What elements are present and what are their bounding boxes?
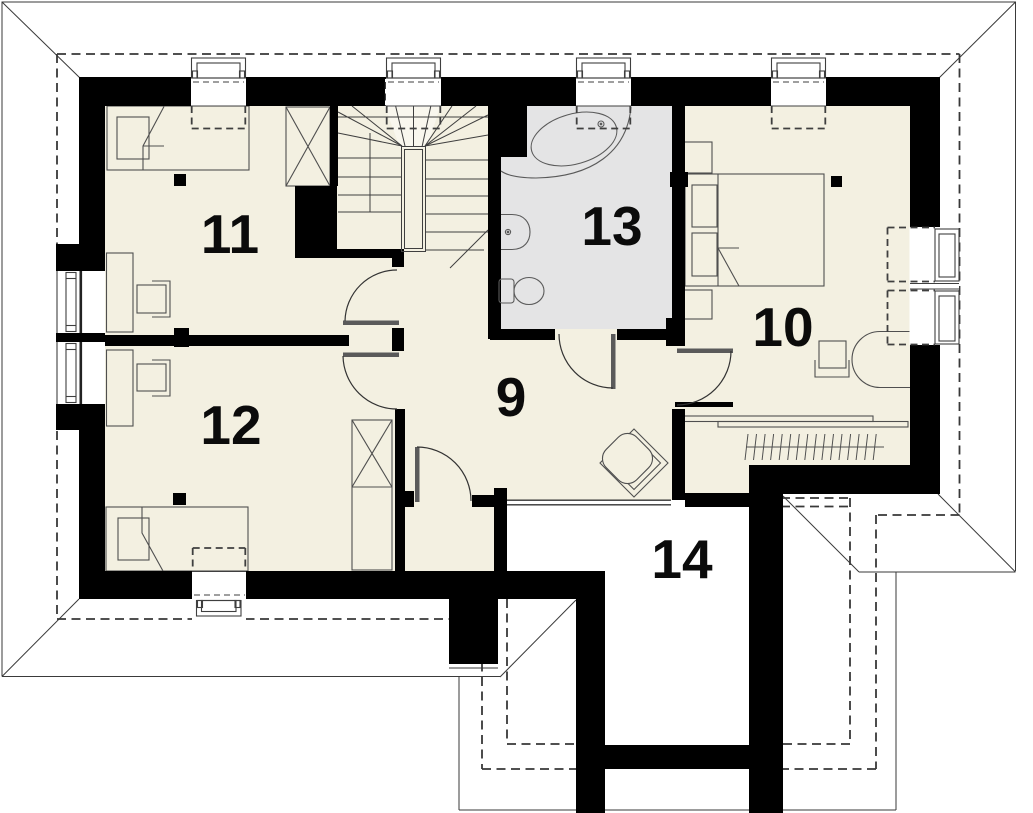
svg-text:12: 12 — [200, 394, 261, 456]
svg-text:14: 14 — [651, 528, 713, 590]
svg-text:9: 9 — [496, 366, 527, 428]
svg-text:13: 13 — [581, 195, 642, 257]
svg-text:10: 10 — [752, 296, 813, 358]
svg-text:11: 11 — [201, 203, 259, 265]
